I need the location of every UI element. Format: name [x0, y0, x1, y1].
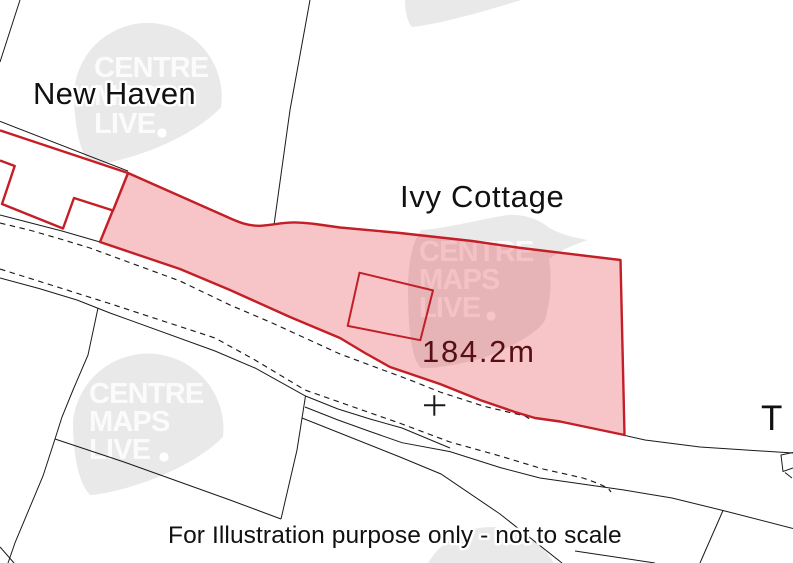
svg-text:Ivy Cottage: Ivy Cottage — [400, 179, 565, 214]
svg-text:LIVE: LIVE — [94, 108, 156, 140]
svg-text:New Haven: New Haven — [33, 76, 196, 111]
svg-text:For Illustration purpose only: For Illustration purpose only - not to s… — [168, 522, 622, 549]
svg-text:T: T — [761, 399, 784, 438]
svg-text:LIVE: LIVE — [89, 434, 151, 466]
